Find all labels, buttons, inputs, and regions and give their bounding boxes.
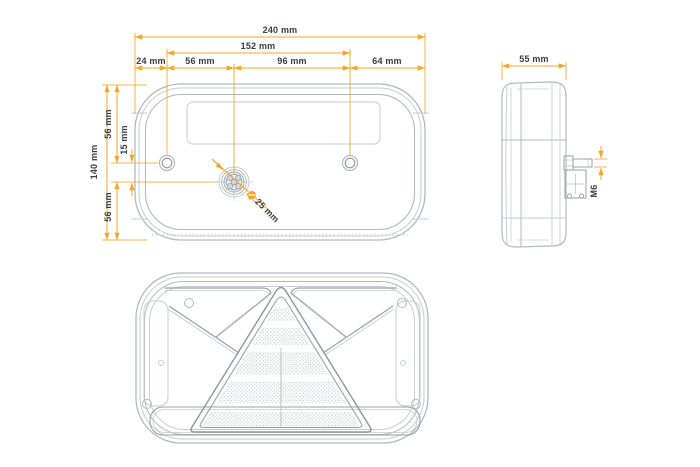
rear-body-middle-outline bbox=[139, 88, 421, 236]
dim-connector-to-screw: 96 mm bbox=[277, 56, 307, 66]
mounting-bracket bbox=[565, 170, 586, 198]
dim-left-edge-to-screw: 24 mm bbox=[136, 56, 166, 66]
dim-connector-to-bottom: 56 mm bbox=[103, 192, 113, 222]
front-view-drawing bbox=[136, 273, 428, 443]
dim-screw-to-right-edge: 64 mm bbox=[372, 56, 402, 66]
lens-notch-left bbox=[159, 361, 164, 366]
ribbed-band-left bbox=[144, 301, 168, 406]
dim-top-to-screw: 56 mm bbox=[103, 109, 113, 139]
rear-screw-hole-left bbox=[160, 156, 175, 171]
dim-depth: 55 mm bbox=[519, 54, 549, 64]
rear-body-inner-outline bbox=[146, 95, 415, 230]
lens-screw-top-left bbox=[185, 299, 194, 308]
side-view-dimensions: 55 mm M6 bbox=[502, 54, 607, 197]
technical-drawing-canvas: 240 mm 152 mm 24 mm 56 mm 96 mm 64 mm 14… bbox=[0, 0, 700, 467]
dim-screw-to-connector: 56 mm bbox=[185, 56, 215, 66]
mounting-stud bbox=[564, 156, 592, 170]
dim-total-height: 140 mm bbox=[89, 145, 99, 180]
dim-mount-span: 152 mm bbox=[241, 41, 276, 51]
dim-total-width: 240 mm bbox=[263, 25, 298, 35]
lens-notch-right bbox=[401, 361, 406, 366]
stud-thread-label: M6 bbox=[589, 185, 599, 198]
side-view-drawing bbox=[502, 82, 592, 247]
svg-text:25 mm: 25 mm bbox=[253, 197, 281, 225]
connector-diameter-label: 25 mm bbox=[245, 189, 281, 225]
rear-screw-hole-right bbox=[343, 156, 358, 171]
rear-label-area bbox=[187, 102, 380, 144]
dim-screw-to-connector-vertical: 15 mm bbox=[119, 125, 129, 155]
triangle-reflector bbox=[191, 288, 371, 433]
triangle-reflector-bands bbox=[192, 292, 370, 432]
ribbed-band-right bbox=[396, 301, 420, 406]
side-body-outline bbox=[502, 82, 566, 247]
